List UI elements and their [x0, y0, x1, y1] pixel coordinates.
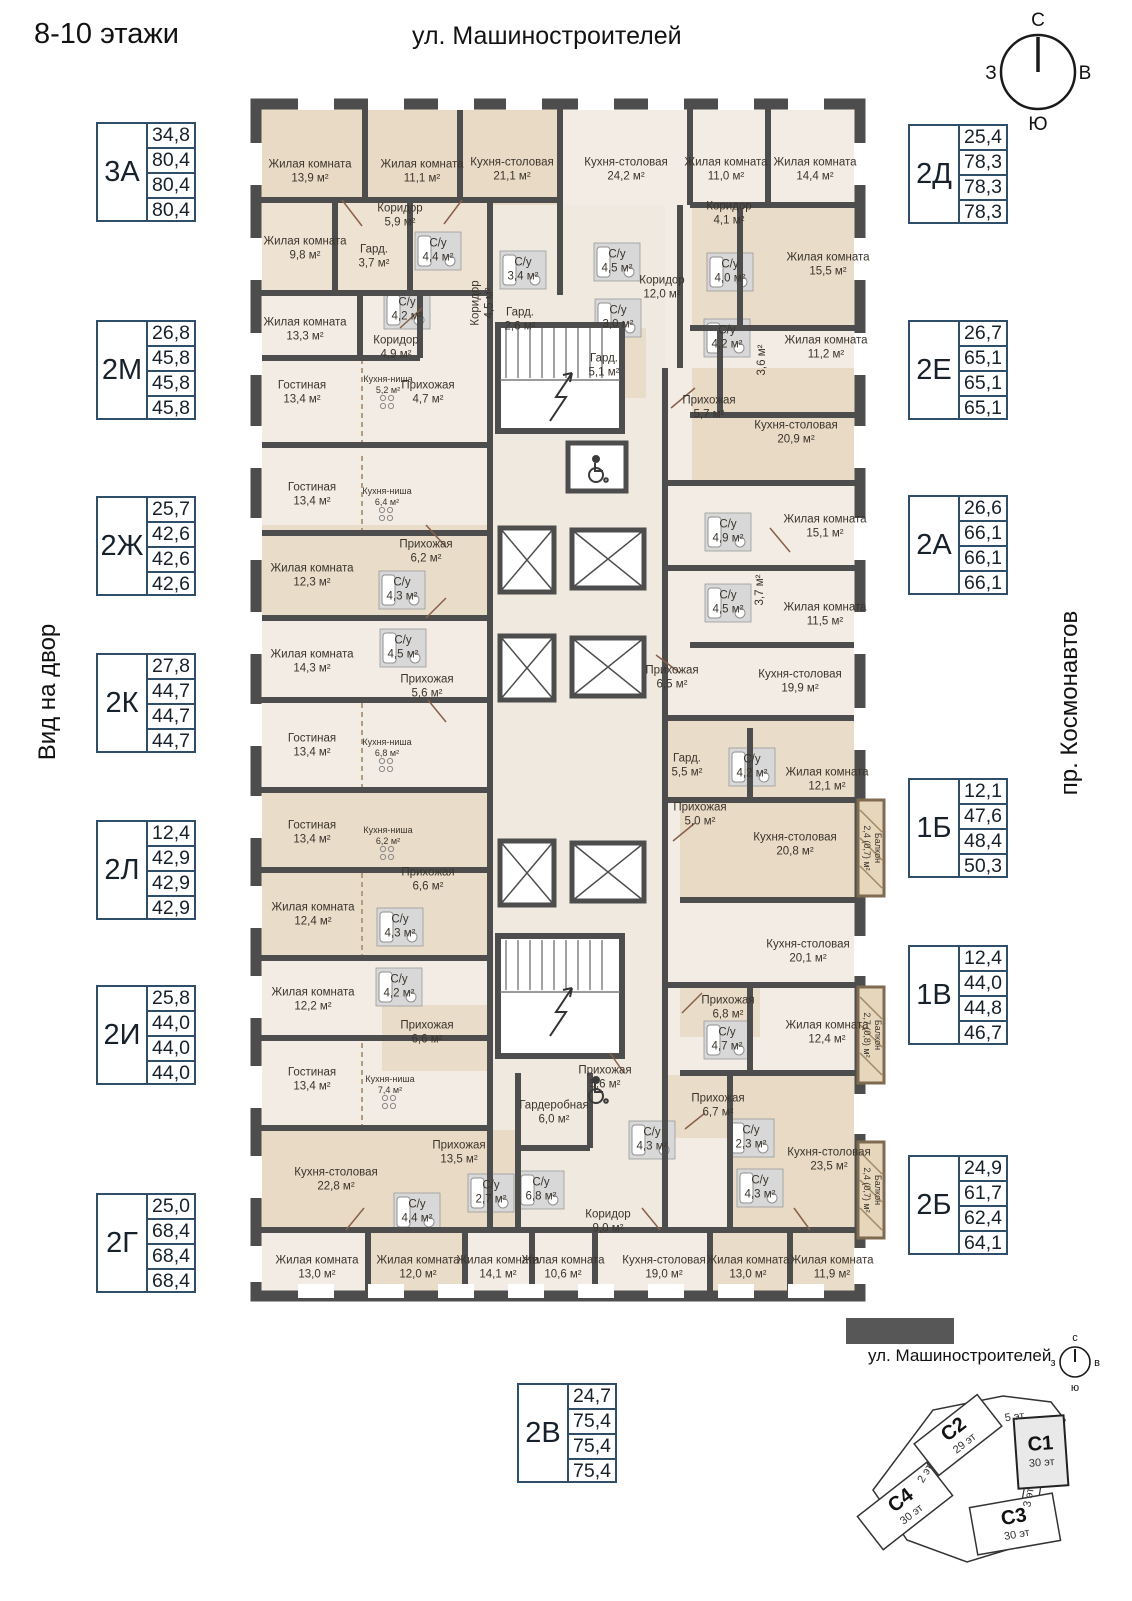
- legend-area-value: 66,1: [960, 547, 1006, 572]
- legend-code: 2Г: [98, 1195, 148, 1291]
- room-label: 3,6 м²: [755, 345, 769, 376]
- legend-area-value: 44,0: [148, 1037, 194, 1062]
- compass-east: В: [1079, 63, 1092, 84]
- legend-code: 2В: [519, 1385, 569, 1481]
- minimap-compass-east: в: [1094, 1357, 1100, 1369]
- legend-area-value: 62,4: [960, 1207, 1006, 1232]
- legend-1В: 1В12,444,044,846,7: [908, 945, 1008, 1045]
- legend-code: 2Е: [910, 322, 960, 418]
- room-label: Жилая комната14,4 м²: [773, 156, 856, 185]
- compass: С Ю З В: [980, 6, 1104, 134]
- room-label: Прихожая5,7 м²: [682, 394, 735, 423]
- room-label: С/у2,3 м²: [736, 1124, 767, 1153]
- room-label: Гард.5,5 м²: [672, 752, 703, 781]
- legend-areas: 26,765,165,165,1: [960, 322, 1006, 418]
- room-label: Жилая комната15,5 м²: [786, 251, 869, 280]
- room-label: Гостиная13,4 м²: [288, 1066, 336, 1095]
- room-label: С/у4,5 м²: [713, 589, 744, 618]
- legend-area-value: 75,4: [569, 1435, 615, 1460]
- legend-2М: 2М26,845,845,845,8: [96, 320, 196, 420]
- street-label-top: ул. Машиностроителей: [412, 22, 682, 51]
- room-label: Балкон2,4 (0,7) м²: [861, 1167, 883, 1212]
- room-label: Коридор4,5 м²: [469, 280, 498, 325]
- legend-1Б: 1Б12,147,648,450,3: [908, 778, 1008, 878]
- room-label: Жилая комната9,8 м²: [263, 235, 346, 264]
- legend-areas: 12,147,648,450,3: [960, 780, 1006, 876]
- room-label: Жилая комната11,5 м²: [783, 601, 866, 630]
- legend-area-value: 42,6: [148, 523, 194, 548]
- legend-area-value: 42,9: [148, 847, 194, 872]
- legend-code: 1Б: [910, 780, 960, 876]
- legend-area-value: 80,4: [148, 149, 194, 174]
- room-labels: Жилая комната13,9 м²Жилая комната11,1 м²…: [250, 88, 910, 1328]
- compass-south: Ю: [1028, 114, 1047, 134]
- legend-area-value: 44,7: [148, 705, 194, 730]
- legend-areas: 26,666,166,166,1: [960, 497, 1006, 593]
- legend-area-value: 12,4: [960, 947, 1006, 972]
- legend-area-value: 24,9: [960, 1157, 1006, 1182]
- room-label: С/у4,7 м²: [712, 1026, 743, 1055]
- legend-area-value: 75,4: [569, 1410, 615, 1435]
- room-label: Кухня-столовая22,8 м²: [294, 1166, 377, 1195]
- room-label: Гостиная13,4 м²: [288, 481, 336, 510]
- compass-north: С: [1031, 10, 1045, 31]
- compass-west: З: [985, 63, 996, 84]
- legend-area-value: 26,6: [960, 497, 1006, 522]
- room-label: С/у4,2 м²: [392, 296, 423, 325]
- legend-area-value: 65,1: [960, 397, 1006, 420]
- legend-code: 2Б: [910, 1157, 960, 1253]
- legend-code: 2И: [98, 987, 148, 1083]
- room-label: Кухня-столовая19,0 м²: [622, 1254, 705, 1283]
- legend-code: 2М: [98, 322, 148, 418]
- legend-areas: 27,844,744,744,7: [148, 655, 194, 751]
- room-label: Кухня-столовая23,5 м²: [787, 1146, 870, 1175]
- legend-area-value: 64,1: [960, 1232, 1006, 1255]
- room-label: С/у4,9 м²: [713, 518, 744, 547]
- room-label: Гардеробная6,0 м²: [519, 1099, 589, 1128]
- legend-area-value: 45,8: [148, 397, 194, 420]
- minimap-compass: с ю з в: [1040, 1330, 1110, 1396]
- room-label: 3,7 м²: [753, 575, 767, 606]
- legend-area-value: 48,4: [960, 830, 1006, 855]
- room-label: Балкон2,7 (0,8) м²: [861, 1012, 883, 1057]
- room-label: Коридор4,1 м²: [706, 200, 751, 229]
- legend-area-value: 27,8: [148, 655, 194, 680]
- legend-area-value: 24,7: [569, 1385, 615, 1410]
- room-label: Жилая комната10,6 м²: [521, 1254, 604, 1283]
- minimap-street-label: ул. Машиностроителей: [868, 1346, 1051, 1366]
- room-label: Прихожая6,7 м²: [691, 1092, 744, 1121]
- legend-areas: 26,845,845,845,8: [148, 322, 194, 418]
- legend-area-value: 50,3: [960, 855, 1006, 878]
- room-label: Кухня-столовая24,2 м²: [584, 156, 667, 185]
- legend-code: 3А: [98, 124, 148, 220]
- legend-areas: 25,068,468,468,4: [148, 1195, 194, 1291]
- room-label: Жилая комната12,2 м²: [271, 986, 354, 1015]
- room-label: Жилая комната12,4 м²: [785, 1019, 868, 1048]
- legend-area-value: 25,7: [148, 498, 194, 523]
- legend-areas: 25,742,642,642,6: [148, 498, 194, 594]
- legend-area-value: 68,4: [148, 1270, 194, 1293]
- room-label: Балкон2,4 (0,7) м²: [861, 825, 883, 870]
- room-label: С/у4,5 м²: [602, 248, 633, 277]
- room-label: С/у3,4 м²: [508, 256, 539, 285]
- room-label: Кухня-столовая21,1 м²: [470, 156, 553, 185]
- legend-area-value: 65,1: [960, 372, 1006, 397]
- room-label: С/у3,0 м²: [603, 304, 634, 333]
- legend-2А: 2А26,666,166,166,1: [908, 495, 1008, 595]
- room-label: С/у4,3 м²: [637, 1126, 668, 1155]
- room-label: С/у6,8 м²: [526, 1176, 557, 1205]
- legend-area-value: 25,4: [960, 126, 1006, 151]
- legend-2Г: 2Г25,068,468,468,4: [96, 1193, 196, 1293]
- room-label: Гостиная13,4 м²: [288, 819, 336, 848]
- room-label: С/у4,2 м²: [384, 973, 415, 1002]
- legend-3А: 3А34,880,480,480,4: [96, 122, 196, 222]
- legend-code: 2К: [98, 655, 148, 751]
- legend-area-value: 80,4: [148, 174, 194, 199]
- legend-area-value: 78,3: [960, 176, 1006, 201]
- legend-code: 2Л: [98, 822, 148, 918]
- minimap-compass-west: з: [1050, 1357, 1055, 1369]
- legend-area-value: 42,9: [148, 872, 194, 897]
- room-label: Гостиная13,4 м²: [278, 379, 326, 408]
- legend-2Е: 2Е26,765,165,165,1: [908, 320, 1008, 420]
- room-label: Кухня-ниша7,4 м²: [365, 1074, 414, 1096]
- courtyard-view-label: Вид на двор: [34, 624, 62, 761]
- room-label: Жилая комната11,0 м²: [684, 156, 767, 185]
- room-label: Кухня-ниша6,4 м²: [362, 486, 411, 508]
- legend-code: 2Д: [910, 126, 960, 222]
- legend-areas: 25,844,044,044,0: [148, 987, 194, 1083]
- room-label: Гард.2,6 м²: [505, 306, 536, 335]
- minimap-compass-north: с: [1072, 1332, 1078, 1344]
- room-label: Прихожая6,2 м²: [399, 538, 452, 567]
- avenue-label-right: пр. Космонавтов: [1056, 611, 1084, 796]
- room-label: С/у4,4 м²: [402, 1198, 433, 1227]
- room-label: С/у4,0 м²: [715, 258, 746, 287]
- legend-2Ж: 2Ж25,742,642,642,6: [96, 496, 196, 596]
- legend-area-value: 75,4: [569, 1460, 615, 1483]
- room-label: Кухня-столовая20,1 м²: [766, 938, 849, 967]
- legend-2В: 2В24,775,475,475,4: [517, 1383, 617, 1483]
- room-label: Коридор4,9 м²: [373, 334, 418, 363]
- room-label: С/у4,4 м²: [423, 237, 454, 266]
- legend-area-value: 45,8: [148, 372, 194, 397]
- room-label: Прихожая5,6 м²: [578, 1064, 631, 1093]
- legend-2Б: 2Б24,961,762,464,1: [908, 1155, 1008, 1255]
- room-label: Кухня-ниша6,2 м²: [363, 825, 412, 847]
- legend-areas: 24,961,762,464,1: [960, 1157, 1006, 1253]
- legend-area-value: 65,1: [960, 347, 1006, 372]
- legend-2К: 2К27,844,744,744,7: [96, 653, 196, 753]
- legend-area-value: 80,4: [148, 199, 194, 222]
- legend-area-value: 44,0: [148, 1012, 194, 1037]
- room-label: Прихожая5,6 м²: [400, 673, 453, 702]
- floor-plan: Жилая комната13,9 м²Жилая комната11,1 м²…: [250, 88, 910, 1328]
- legend-area-value: 45,8: [148, 347, 194, 372]
- room-label: Жилая комната11,9 м²: [790, 1254, 873, 1283]
- room-label: Коридор9,0 м²: [585, 1208, 630, 1237]
- room-label: Гостиная13,4 м²: [288, 732, 336, 761]
- legend-areas: 24,775,475,475,4: [569, 1385, 615, 1481]
- legend-area-value: 34,8: [148, 124, 194, 149]
- adjacent-section-wall: [846, 1318, 954, 1344]
- room-label: С/у4,2 м²: [737, 753, 768, 782]
- room-label: С/у4,2 м²: [712, 324, 743, 353]
- room-label: Жилая комната13,0 м²: [275, 1254, 358, 1283]
- legend-area-value: 44,7: [148, 680, 194, 705]
- legend-area-value: 12,1: [960, 780, 1006, 805]
- legend-area-value: 66,1: [960, 522, 1006, 547]
- room-label: С/у4,3 м²: [387, 576, 418, 605]
- room-label: Кухня-ниша6,8 м²: [362, 737, 411, 759]
- room-label: Жилая комната13,0 м²: [706, 1254, 789, 1283]
- room-label: Прихожая6,6 м²: [401, 866, 454, 895]
- legend-areas: 34,880,480,480,4: [148, 124, 194, 220]
- room-label: Гард.5,1 м²: [589, 352, 620, 381]
- room-label: Кухня-столовая20,8 м²: [753, 831, 836, 860]
- legend-areas: 25,478,378,378,3: [960, 126, 1006, 222]
- room-label: Коридор5,9 м²: [377, 202, 422, 231]
- legend-code: 2А: [910, 497, 960, 593]
- legend-areas: 12,444,044,846,7: [960, 947, 1006, 1043]
- room-label: Прихожая6,5 м²: [645, 664, 698, 693]
- room-label: Прихожая5,0 м²: [673, 801, 726, 830]
- legend-area-value: 44,8: [960, 997, 1006, 1022]
- room-label: Жилая комната11,1 м²: [380, 158, 463, 187]
- legend-area-value: 42,9: [148, 897, 194, 920]
- room-label: Жилая комната14,3 м²: [270, 648, 353, 677]
- legend-area-value: 46,7: [960, 1022, 1006, 1045]
- building-name: С1: [1027, 1432, 1054, 1456]
- room-label: С/у2,7 м²: [476, 1179, 507, 1208]
- building-floors: 30 эт: [1029, 1456, 1055, 1470]
- minimap-building-c1: С1 30 эт: [1014, 1415, 1069, 1488]
- legend-2Л: 2Л12,442,942,942,9: [96, 820, 196, 920]
- legend-areas: 12,442,942,942,9: [148, 822, 194, 918]
- room-label: Жилая комната12,1 м²: [785, 766, 868, 795]
- room-label: Прихожая4,7 м²: [401, 379, 454, 408]
- legend-area-value: 61,7: [960, 1182, 1006, 1207]
- legend-area-value: 25,0: [148, 1195, 194, 1220]
- legend-area-value: 78,3: [960, 201, 1006, 224]
- room-label: Жилая комната12,0 м²: [376, 1254, 459, 1283]
- legend-area-value: 12,4: [148, 822, 194, 847]
- room-label: С/у4,3 м²: [385, 913, 416, 942]
- legend-area-value: 47,6: [960, 805, 1006, 830]
- legend-area-value: 68,4: [148, 1245, 194, 1270]
- page-title: 8-10 этажи: [34, 18, 179, 51]
- room-label: Кухня-столовая19,9 м²: [758, 668, 841, 697]
- legend-area-value: 26,7: [960, 322, 1006, 347]
- room-label: Гард.3,7 м²: [359, 243, 390, 272]
- legend-code: 1В: [910, 947, 960, 1043]
- room-label: Коридор12,0 м²: [639, 274, 684, 303]
- legend-code: 2Ж: [98, 498, 148, 594]
- legend-area-value: 25,8: [148, 987, 194, 1012]
- legend-area-value: 78,3: [960, 151, 1006, 176]
- legend-area-value: 26,8: [148, 322, 194, 347]
- legend-area-value: 42,6: [148, 548, 194, 573]
- legend-area-value: 68,4: [148, 1220, 194, 1245]
- room-label: Прихожая6,8 м²: [701, 994, 754, 1023]
- room-label: С/у4,5 м²: [388, 634, 419, 663]
- legend-2Д: 2Д25,478,378,378,3: [908, 124, 1008, 224]
- room-label: Жилая комната12,4 м²: [271, 901, 354, 930]
- legend-area-value: 44,0: [148, 1062, 194, 1085]
- room-label: Прихожая6,6 м²: [400, 1019, 453, 1048]
- room-label: Жилая комната13,3 м²: [263, 316, 346, 345]
- room-label: Прихожая13,5 м²: [432, 1139, 485, 1168]
- site-minimap: С2 29 эт С1 30 эт С4 30 эт С3 30 эт 5 эт…: [855, 1390, 1127, 1600]
- legend-area-value: 44,7: [148, 730, 194, 753]
- room-label: Жилая комната13,9 м²: [268, 158, 351, 187]
- legend-2И: 2И25,844,044,044,0: [96, 985, 196, 1085]
- legend-area-value: 66,1: [960, 572, 1006, 595]
- room-label: Кухня-столовая20,9 м²: [754, 419, 837, 448]
- legend-area-value: 44,0: [960, 972, 1006, 997]
- building-name: С3: [999, 1504, 1028, 1530]
- room-label: Жилая комната11,2 м²: [784, 334, 867, 363]
- minimap-building-c3: С3 30 эт: [969, 1493, 1060, 1555]
- legend-area-value: 42,6: [148, 573, 194, 596]
- room-label: С/у4,3 м²: [745, 1174, 776, 1203]
- room-label: Жилая комната12,3 м²: [270, 562, 353, 591]
- room-label: Жилая комната15,1 м²: [783, 513, 866, 542]
